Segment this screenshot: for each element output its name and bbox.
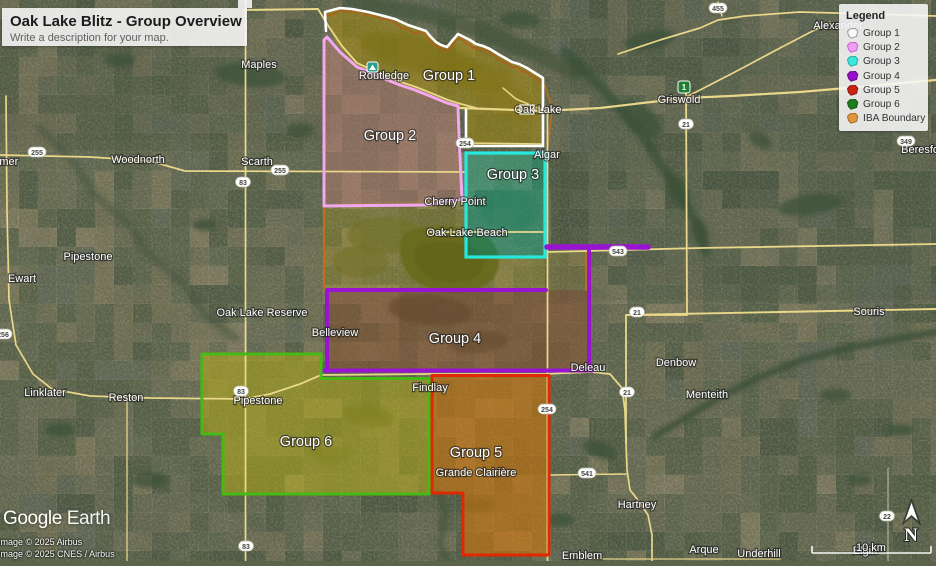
svg-text:Algar: Algar	[534, 149, 560, 161]
svg-text:Maples: Maples	[241, 59, 277, 71]
svg-text:349: 349	[900, 139, 912, 146]
svg-text:Woodnorth: Woodnorth	[111, 154, 165, 166]
svg-text:Reston: Reston	[109, 392, 144, 404]
svg-text:Group 4: Group 4	[429, 331, 481, 347]
svg-text:Griswold: Griswold	[658, 94, 701, 106]
svg-text:254: 254	[459, 141, 471, 148]
svg-text:83: 83	[237, 389, 245, 396]
svg-text:455: 455	[712, 6, 724, 13]
svg-text:Group 2: Group 2	[364, 128, 416, 144]
svg-text:Scarth: Scarth	[241, 156, 273, 168]
svg-text:254: 254	[541, 407, 553, 414]
svg-text:Linklater: Linklater	[24, 387, 66, 399]
svg-text:1: 1	[682, 83, 687, 92]
svg-text:Menteith: Menteith	[686, 389, 728, 401]
svg-text:Arque: Arque	[689, 544, 718, 556]
svg-text:Group 5: Group 5	[450, 445, 502, 461]
svg-text:Pipestone: Pipestone	[234, 395, 283, 407]
svg-text:543: 543	[612, 249, 624, 256]
svg-text:10 km: 10 km	[856, 542, 886, 554]
svg-text:Hartney: Hartney	[618, 499, 657, 511]
svg-text:Underhill: Underhill	[737, 548, 780, 560]
svg-text:21: 21	[633, 310, 641, 317]
svg-text:Souris: Souris	[853, 306, 885, 318]
svg-text:541: 541	[581, 471, 593, 478]
svg-text:Oak Lake Reserve: Oak Lake Reserve	[216, 307, 307, 319]
svg-text:21: 21	[682, 122, 690, 129]
svg-text:22: 22	[883, 514, 891, 521]
svg-text:Belleview: Belleview	[312, 327, 359, 339]
svg-text:Grande Clairière: Grande Clairière	[436, 467, 517, 479]
svg-text:Routledge: Routledge	[359, 70, 409, 82]
svg-text:Deleau: Deleau	[571, 362, 606, 374]
svg-text:N: N	[904, 525, 918, 546]
svg-text:Denbow: Denbow	[656, 357, 696, 369]
svg-text:Oak Lake Beach: Oak Lake Beach	[426, 227, 507, 239]
svg-text:Group 3: Group 3	[487, 167, 539, 183]
svg-text:83: 83	[239, 180, 247, 187]
svg-text:Cherry Point: Cherry Point	[424, 196, 485, 208]
svg-text:Cromer: Cromer	[0, 156, 19, 168]
svg-text:Pipestone: Pipestone	[64, 251, 113, 263]
svg-text:256: 256	[0, 332, 9, 339]
svg-text:83: 83	[242, 544, 250, 551]
svg-text:255: 255	[274, 168, 286, 175]
svg-text:255: 255	[31, 150, 43, 157]
svg-text:Group 1: Group 1	[423, 68, 475, 84]
svg-text:21: 21	[623, 390, 631, 397]
svg-text:Emblem: Emblem	[562, 550, 602, 561]
svg-text:Group 6: Group 6	[280, 434, 332, 450]
svg-text:Findlay: Findlay	[412, 382, 448, 394]
svg-text:Ewart: Ewart	[8, 273, 36, 285]
